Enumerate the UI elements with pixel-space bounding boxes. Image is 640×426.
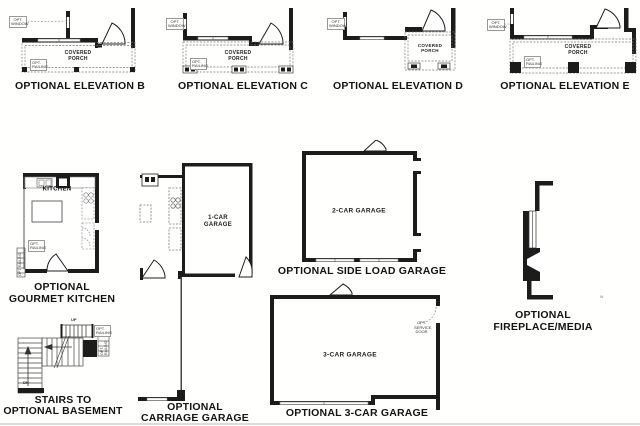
opt-window-note: OPT. WINDOW — [9, 16, 27, 28]
three-car-garage-label: 3-CAR GARAGE — [323, 351, 377, 358]
bottom-wall — [18, 388, 44, 393]
up-label: UP — [71, 318, 77, 323]
opt-window-note: OPT. WINDOW — [166, 18, 184, 30]
covered-porch-label: COVERED PORCH — [220, 51, 256, 63]
opt-railing-note: OPT. RAILING — [94, 325, 111, 337]
opt-railing-note: OPT. RAILING — [28, 240, 45, 252]
opt-window-note: OPT. WINDOW — [487, 19, 505, 31]
caption-basement-stairs-2: OPTIONAL BASEMENT — [3, 406, 122, 417]
caption-elevation-c: OPTIONAL ELEVATION C — [178, 81, 308, 92]
caption-three-car-garage: OPTIONAL 3-CAR GARAGE — [286, 408, 428, 419]
floor-plan-options-sheet: OPT. WINDOW COVERED PORCH OPT. RAILING O… — [0, 0, 640, 426]
opt-railing-vertical-note: OPT. RAILING — [100, 337, 108, 355]
elevation-c-drawing — [166, 8, 316, 78]
panel-elevation-d: OPT. WINDOW COVERED PORCH — [330, 8, 470, 78]
opt-railing-vertical-note: OPT. RAILING — [18, 250, 22, 276]
kitchen-room-label: KITCHEN — [43, 186, 72, 193]
opt-railing-note: OPT. RAILING — [524, 56, 541, 68]
caption-gourmet-kitchen-2: GOURMET KITCHEN — [9, 294, 115, 305]
covered-porch-label: COVERED PORCH — [558, 45, 598, 57]
panel-basement-stairs: UP OPT. RAILING OPT. RAILING DN — [12, 316, 124, 396]
caption-elevation-d: OPTIONAL ELEVATION D — [333, 81, 463, 92]
fireplace-media-drawing — [516, 178, 626, 308]
direction-arrows — [25, 336, 72, 386]
panel-fireplace-media — [516, 178, 626, 308]
porch-posts — [408, 63, 450, 69]
caption-elevation-b: OPTIONAL ELEVATION B — [15, 81, 145, 92]
fireplace-walls — [523, 181, 553, 300]
door-swing — [364, 140, 386, 151]
caption-elevation-e: OPTIONAL ELEVATION E — [500, 81, 629, 92]
opt-service-door-note: OPT. SERVICE DOOR — [414, 321, 429, 335]
kitchenette — [140, 174, 181, 250]
panel-elevation-c: OPT. WINDOW COVERED PORCH OPT. RAILING — [166, 8, 316, 78]
two-car-garage-label: 2-CAR GARAGE — [332, 207, 386, 214]
panel-side-load-garage: 2-CAR GARAGE — [296, 140, 426, 280]
opt-railing-note: OPT. RAILING — [30, 59, 47, 71]
page-bottom-edge — [0, 423, 640, 425]
panel-elevation-b: OPT. WINDOW COVERED PORCH OPT. RAILING — [8, 8, 156, 78]
panel-carriage-garage: 1-CAR GARAGE — [138, 148, 258, 426]
door-swing — [596, 9, 620, 28]
caption-side-load-garage: OPTIONAL SIDE LOAD GARAGE — [278, 266, 446, 277]
opt-railing-note: OPT. RAILING — [190, 58, 207, 70]
covered-porch-label: COVERED PORCH — [412, 43, 448, 53]
kitchen-island — [32, 201, 62, 222]
watermark-mark: w — [600, 294, 603, 299]
door-swing — [422, 10, 445, 31]
panel-gourmet-kitchen: KITCHEN OPT. RAILING OPT. RAILING — [16, 168, 116, 292]
door-swing — [142, 260, 165, 278]
elevation-d-drawing — [330, 8, 470, 78]
door-swing — [102, 23, 125, 44]
caption-fireplace-media-1: OPTIONAL — [515, 310, 571, 321]
door-swing — [259, 23, 283, 44]
dn-label: DN — [23, 381, 29, 386]
panel-three-car-garage: 3-CAR GARAGE OPT. SERVICE DOOR — [264, 283, 449, 426]
carriage-garage-drawing — [138, 148, 258, 426]
elevation-e-drawing — [484, 8, 640, 78]
covered-porch-label: COVERED PORCH — [60, 51, 96, 63]
panel-elevation-e: OPT. WINDOW COVERED PORCH OPT. RAILING — [484, 8, 640, 78]
caption-gourmet-kitchen-1: OPTIONAL — [34, 282, 90, 293]
caption-fireplace-media-2: FIREPLACE/MEDIA — [493, 322, 592, 333]
one-car-garage-label: 1-CAR GARAGE — [203, 215, 233, 229]
door-swing — [330, 284, 352, 295]
door-swing — [47, 254, 68, 271]
opt-window-note: OPT. WINDOW — [327, 18, 345, 30]
stair-wall — [83, 340, 97, 357]
side-wall-below — [138, 277, 185, 401]
upper-railing — [61, 324, 94, 338]
